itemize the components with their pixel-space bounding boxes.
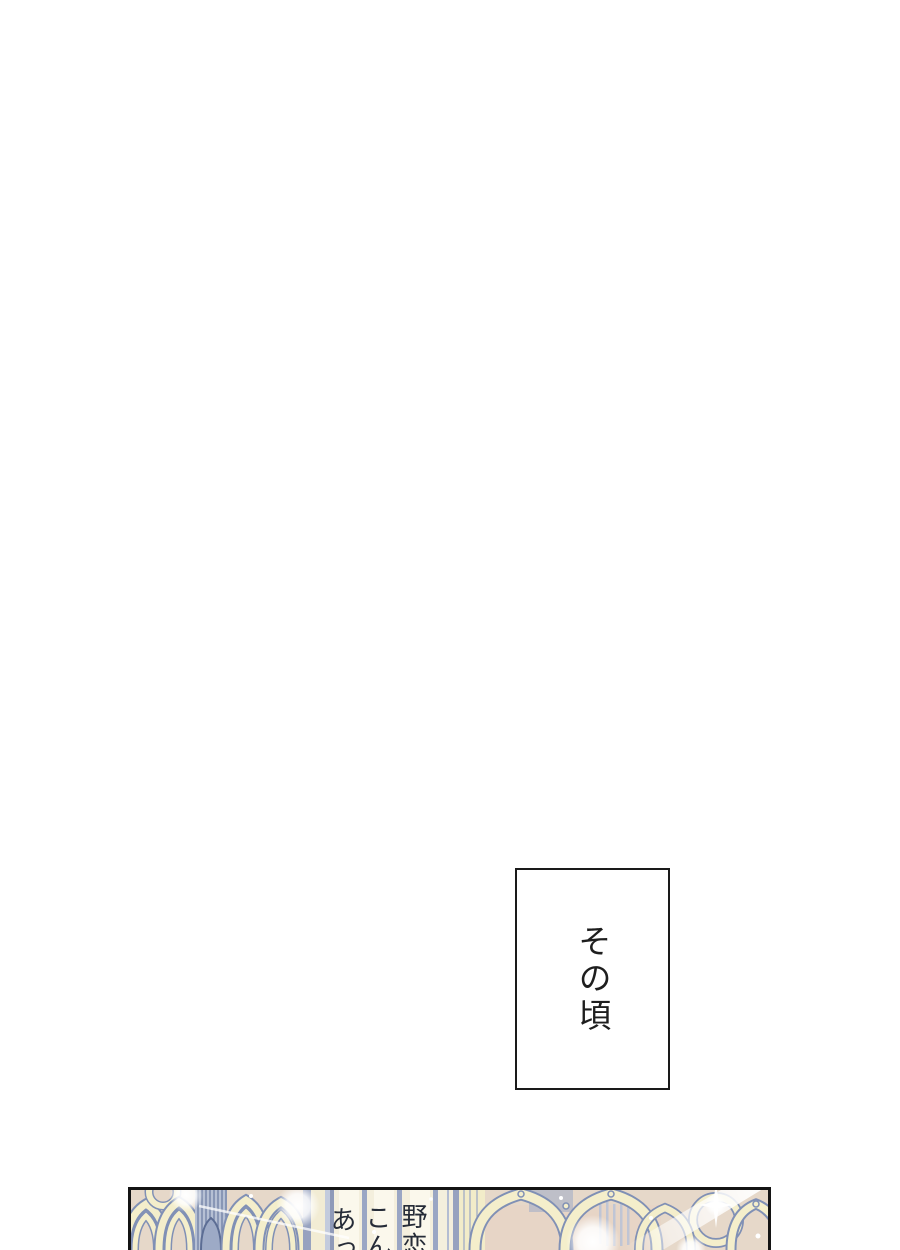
cathedral-arches-artwork: [131, 1190, 768, 1250]
manga-page[interactable]: その頃: [0, 0, 900, 1250]
caption-panel: その頃: [515, 868, 670, 1090]
caption-text: その頃: [576, 924, 609, 1035]
speech-text-column-3: あっ: [328, 1206, 354, 1250]
speech-text-column-2: こん: [363, 1204, 389, 1250]
bottom-panel: 野恋 こん あっ: [128, 1187, 771, 1250]
speech-text-column-1: 野恋: [399, 1203, 425, 1250]
